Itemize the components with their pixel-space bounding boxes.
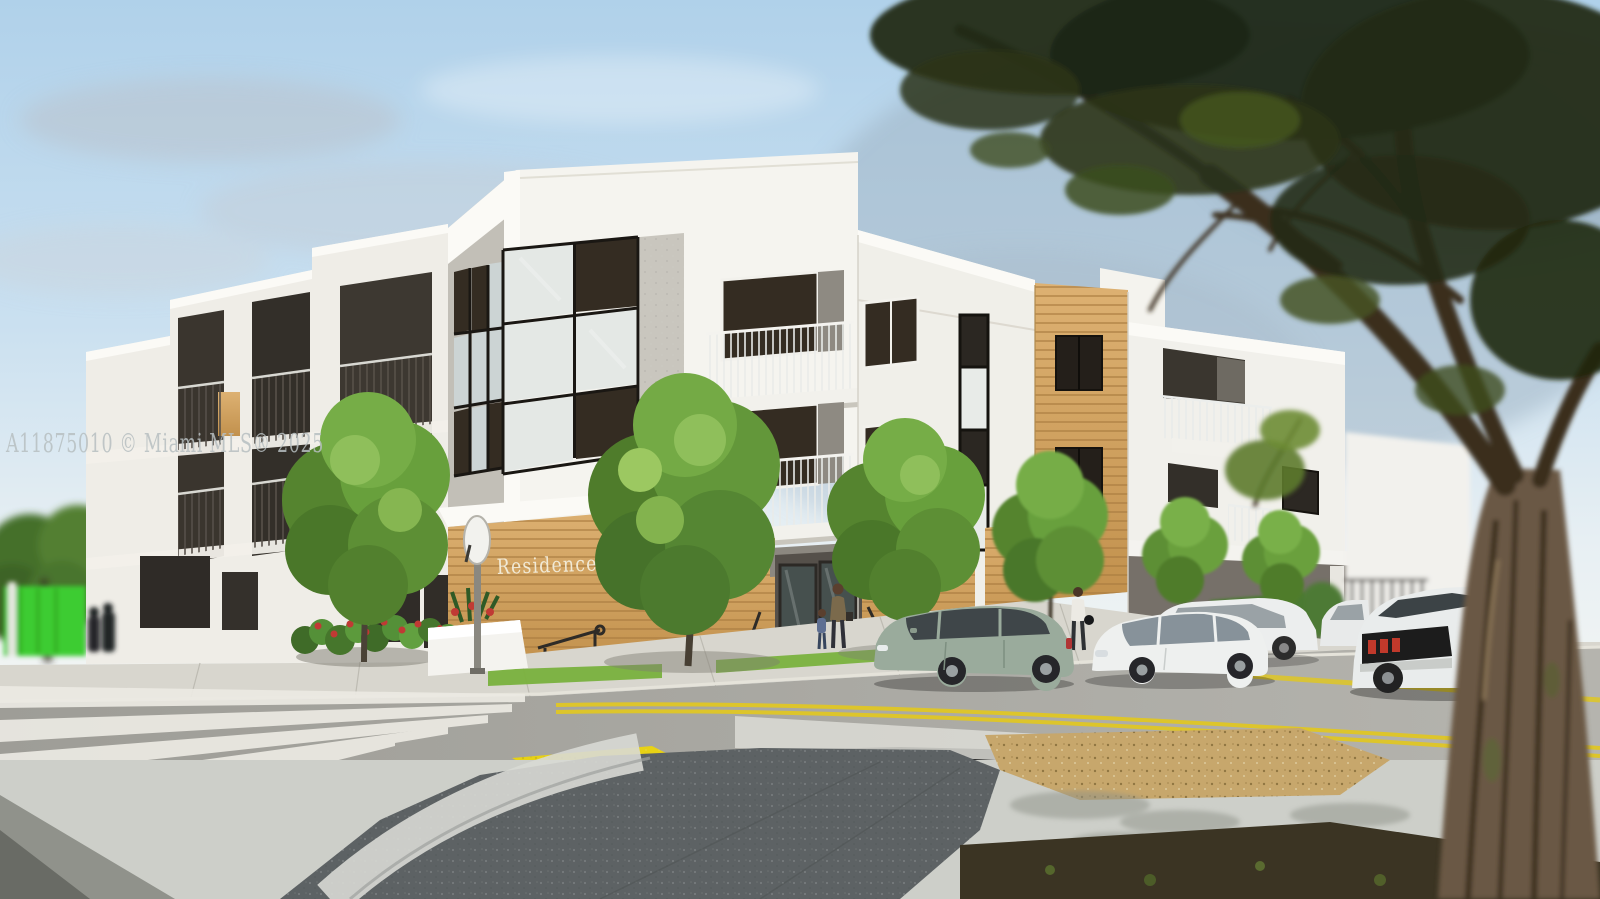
green-fence [4,582,86,656]
mls-watermark-text: A11875010 © Miami MLS® 2025 [5,429,324,459]
corner-glass-grid [503,237,638,474]
rendering-scene: Residences 54 [0,0,1600,899]
car-sage-golf [874,606,1074,692]
scene-canvas: Residences 54 [0,0,1600,899]
